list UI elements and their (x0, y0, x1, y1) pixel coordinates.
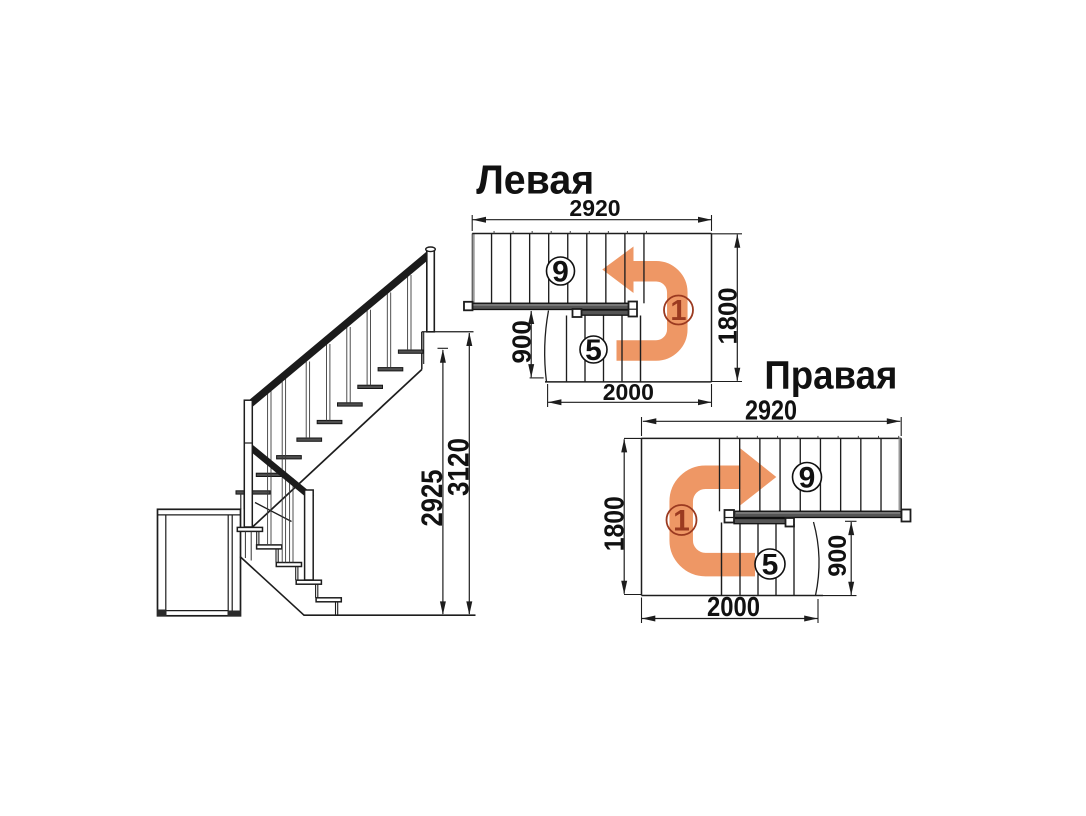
svg-text:1: 1 (670, 295, 686, 327)
svg-text:3120: 3120 (443, 438, 476, 496)
svg-text:1800: 1800 (599, 496, 630, 551)
svg-text:Правая: Правая (764, 353, 897, 397)
svg-text:1800: 1800 (712, 288, 742, 345)
svg-text:5: 5 (585, 334, 602, 367)
svg-text:2000: 2000 (603, 379, 654, 405)
svg-text:5: 5 (762, 549, 779, 582)
svg-text:900: 900 (824, 535, 852, 577)
svg-text:900: 900 (506, 320, 536, 363)
svg-text:2920: 2920 (745, 395, 797, 426)
svg-text:2000: 2000 (707, 591, 760, 622)
svg-text:1: 1 (673, 505, 690, 538)
svg-text:9: 9 (799, 462, 816, 495)
svg-text:2920: 2920 (569, 195, 620, 221)
svg-text:9: 9 (552, 255, 569, 288)
